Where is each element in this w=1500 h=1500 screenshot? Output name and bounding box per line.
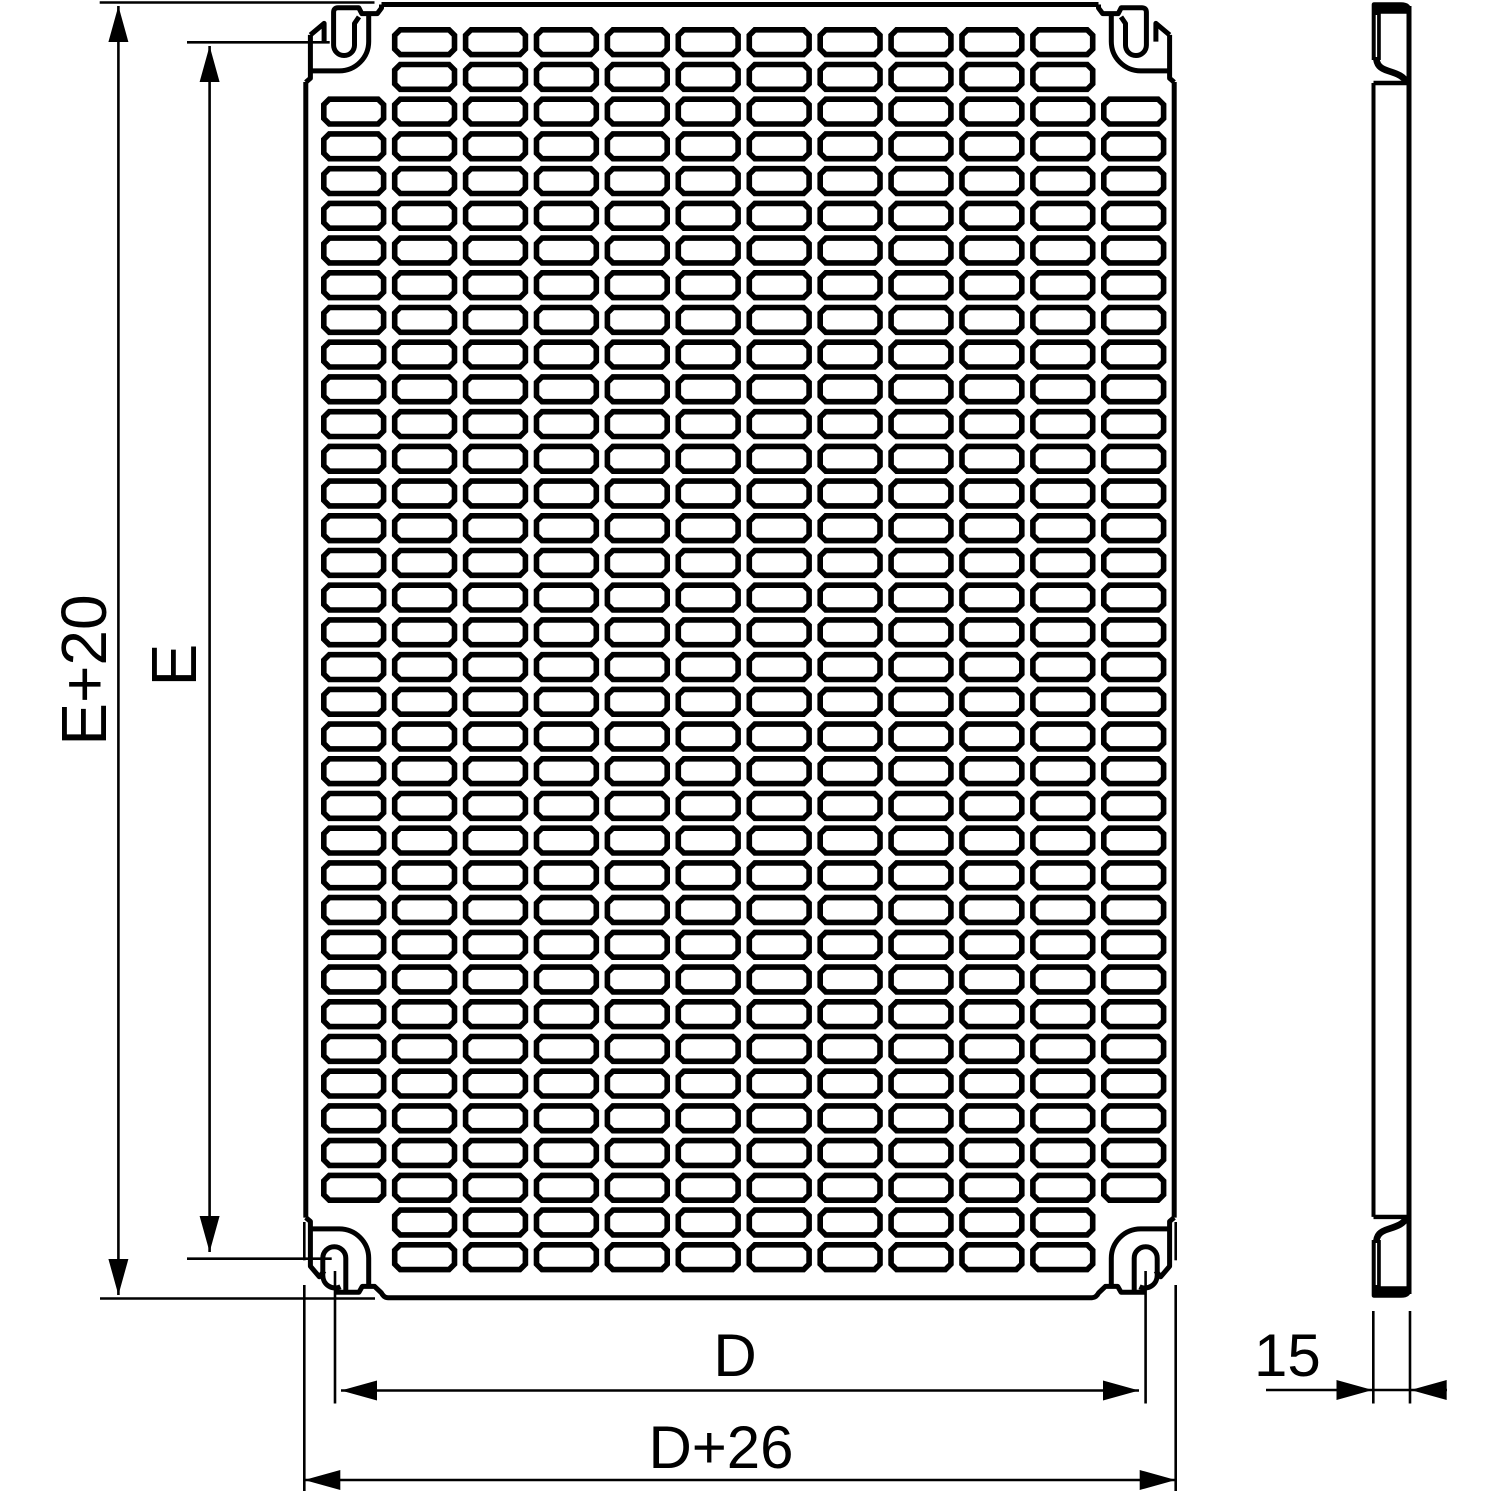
- svg-text:E+20: E+20: [48, 594, 120, 745]
- svg-text:15: 15: [1254, 1322, 1321, 1389]
- svg-text:D: D: [713, 1322, 756, 1389]
- svg-text:D+26: D+26: [648, 1414, 793, 1481]
- svg-text:E: E: [138, 644, 210, 687]
